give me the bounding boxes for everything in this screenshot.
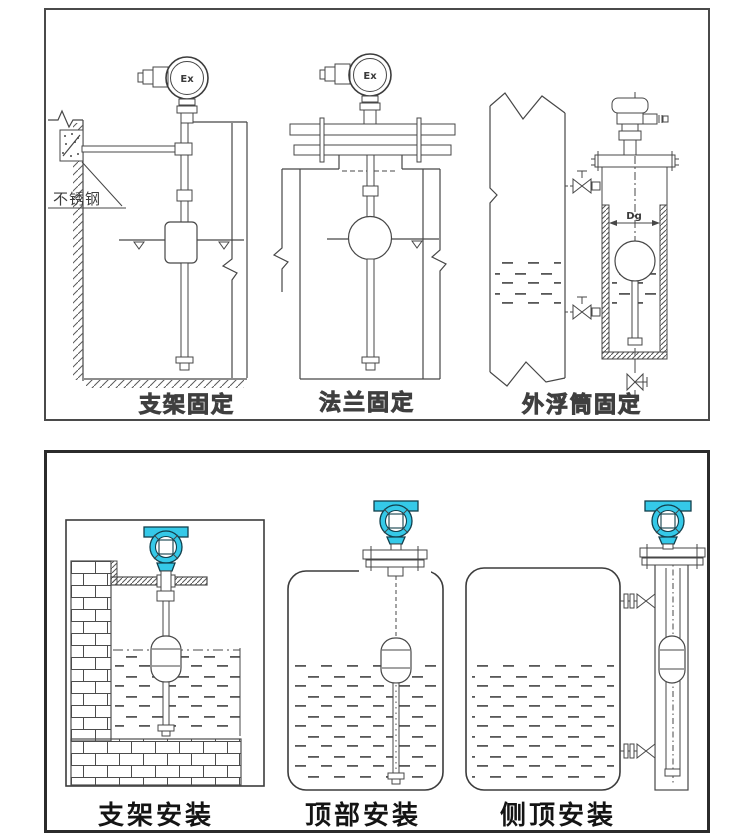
diagram-label-bracket-fixing: 支架固定	[139, 392, 235, 418]
installation-diagram-sheet: 不锈钢 Ex	[0, 0, 750, 840]
ex-transmitter-head: Ex	[138, 57, 208, 123]
chamber-ball-float	[615, 241, 655, 281]
lower-rod	[181, 263, 188, 357]
end-cap-6	[665, 769, 680, 776]
fixing-methods-panel: 不锈钢 Ex	[44, 8, 710, 421]
float-body	[165, 222, 197, 263]
dg-label: Dg	[626, 211, 641, 222]
float-6	[659, 636, 685, 683]
lower-connection-valve-6	[620, 744, 655, 758]
upper-connection-valve-6	[620, 594, 655, 608]
installation-methods-panel: 支架安装	[44, 450, 710, 833]
stem-pipe	[181, 123, 188, 223]
rod-end-cap	[176, 357, 193, 363]
chamber-rod-coupling	[628, 338, 642, 345]
upper-isolation-valve	[565, 171, 600, 193]
diagram-label-bracket-install: 支架安装	[98, 801, 214, 830]
bracket-installation-diagram: 支架安装	[66, 520, 264, 830]
stainless-steel-annotation: 不锈钢	[48, 162, 126, 208]
diagram-label-sidetop-install: 侧顶安装	[500, 801, 616, 830]
ball-float	[349, 217, 392, 260]
stainless-steel-label: 不锈钢	[53, 190, 101, 208]
top-installation-diagram: 顶部安装	[288, 501, 443, 830]
float-4	[151, 636, 181, 682]
diagram-label-flange-fixing: 法兰固定	[319, 390, 415, 416]
end-tip-4	[162, 731, 170, 736]
pipe-coupling	[177, 190, 192, 201]
water-dashes-6	[472, 658, 614, 784]
vessel-liquid-dashes	[495, 257, 561, 307]
bottom-panel-figure: 支架安装	[47, 453, 707, 830]
flange-fixing-diagram: Ex	[274, 54, 455, 416]
rod-end-cap-2	[362, 357, 379, 363]
coupling-5	[388, 567, 403, 576]
lower-rod-4	[163, 682, 169, 725]
ex-marking: Ex	[180, 74, 194, 85]
arm-clamp	[175, 143, 192, 155]
brick-wall	[71, 561, 111, 741]
mounting-bracket	[60, 130, 175, 161]
process-vessel-broken-outline	[490, 93, 565, 386]
rod-end-tip	[180, 363, 189, 370]
chamber-transmitter-head	[612, 98, 668, 155]
coupling-4	[157, 591, 174, 601]
external-chamber-diagram: Dg	[490, 92, 679, 418]
diagram-label-top-install: 顶部安装	[305, 801, 421, 830]
side-top-installation-diagram: 侧顶安装	[466, 501, 705, 830]
ex-marking-2: Ex	[363, 71, 377, 82]
tank-outline	[274, 155, 446, 379]
end-cap-5	[388, 773, 404, 779]
end-tip-5	[392, 779, 400, 784]
end-cap-4	[158, 725, 174, 731]
brick-floor	[71, 739, 241, 785]
ex-transmitter-head-2: Ex	[320, 54, 391, 124]
teal-transmitter-head-5	[374, 501, 418, 550]
lower-isolation-valve	[565, 297, 600, 319]
lower-rod-2	[367, 259, 374, 357]
rod-end-tip-2	[366, 363, 375, 370]
float-5	[381, 638, 411, 683]
bracket-fixing-diagram: 不锈钢 Ex	[48, 57, 247, 418]
chamber-rod	[632, 281, 638, 338]
rod-4	[163, 601, 169, 636]
teal-transmitter-head-6	[645, 501, 691, 549]
diagram-label-chamber-fixing: 外浮筒固定	[522, 392, 642, 418]
top-panel-figure: 不锈钢 Ex	[46, 10, 708, 419]
tank-wall-break-lines	[193, 122, 247, 378]
rod-coupling-2	[363, 186, 378, 196]
water-dashes-5	[294, 661, 437, 784]
